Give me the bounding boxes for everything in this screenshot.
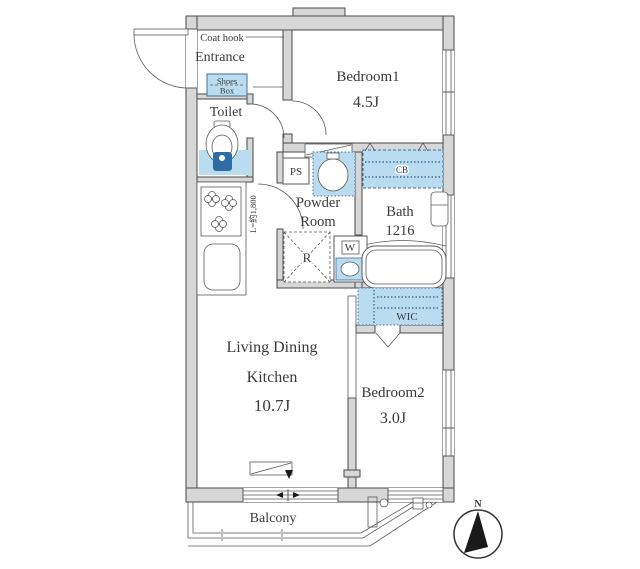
- balcony-sliding-door: [243, 488, 338, 502]
- shoes-box-label-line1: Shoes: [217, 76, 237, 86]
- ldk-counter: [250, 462, 293, 479]
- refrigerator-label: R: [303, 250, 312, 265]
- compass: N: [454, 499, 502, 558]
- entrance-label: Entrance: [195, 50, 245, 65]
- window-bedroom2: [443, 370, 454, 456]
- faucet-icon: [213, 152, 232, 171]
- cb-label: CB: [396, 165, 408, 175]
- bedroom1-label: Bedroom1: [336, 69, 399, 85]
- washbasin-icon: [313, 152, 355, 196]
- kitchen-area: [197, 182, 246, 295]
- ldk-size: 10.7J: [254, 396, 291, 415]
- wic-label: WIC: [396, 311, 417, 323]
- door-arc-toilet: [250, 104, 284, 138]
- bedroom2-size: 3.0J: [380, 410, 406, 427]
- powder-room-label-line2: Room: [300, 214, 336, 230]
- bath-label: Bath: [386, 204, 414, 220]
- balcony-area: [188, 497, 437, 546]
- drain-icon: [380, 499, 388, 507]
- door-arc-bedroom1: [292, 101, 326, 135]
- bedroom1-size: 4.5J: [353, 94, 379, 111]
- washer-label: W: [345, 242, 356, 254]
- bath-door-curve: [360, 241, 446, 247]
- coat-hook-label: Coat hook: [200, 33, 244, 44]
- floor-plan-drawing: N Coat hook Entrance Shoes Box Toilet PS…: [0, 0, 640, 569]
- shoes-box-label-line2: Box: [220, 86, 235, 96]
- ldk-label-line2: Kitchen: [247, 369, 298, 386]
- bath-counter: [431, 192, 448, 226]
- balcony-label: Balcony: [250, 511, 297, 526]
- powder-room-fixtures: [283, 144, 367, 282]
- window-bedroom1: [443, 50, 454, 135]
- bath-size: 1216: [386, 223, 415, 239]
- powder-room-label-line1: Powder: [296, 195, 340, 211]
- toilet-label: Toilet: [210, 105, 243, 120]
- bedroom2-label: Bedroom2: [361, 385, 424, 401]
- entrance-door: [134, 29, 197, 88]
- kitchen-counter-length-label: L=約1,800: [248, 195, 258, 233]
- compass-north-label: N: [474, 499, 482, 510]
- ps-label: PS: [290, 166, 302, 178]
- toilet-area: [199, 121, 251, 175]
- kitchen-sink-icon: [204, 244, 240, 290]
- floor-plan: N Coat hook Entrance Shoes Box Toilet PS…: [0, 0, 640, 569]
- sliding-door-bedroom2: [348, 296, 356, 398]
- wic-folding-door: [376, 333, 400, 347]
- entrance-area: [207, 37, 284, 96]
- ldk-label-line1: Living Dining: [226, 339, 317, 356]
- bathtub-icon: [362, 246, 446, 288]
- meter-box: [413, 498, 423, 509]
